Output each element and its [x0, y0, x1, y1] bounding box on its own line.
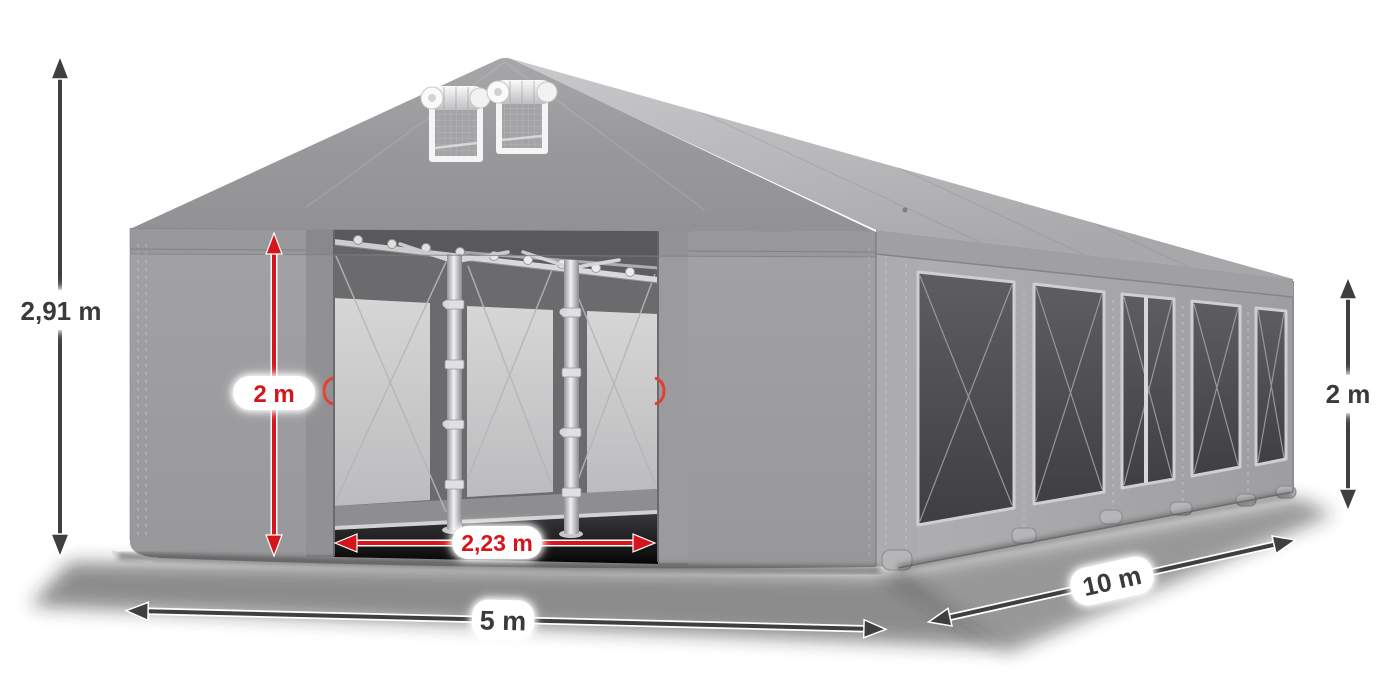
vent-window-right [487, 80, 557, 154]
vent-roll-left [421, 86, 490, 110]
tent [112, 57, 1296, 570]
side-window-5 [1256, 308, 1286, 465]
side-window-4 [1192, 301, 1240, 476]
interior-far-window-2 [467, 306, 553, 497]
side-window-1 [918, 272, 1014, 525]
arrowhead-down-icon [1339, 489, 1357, 511]
door-opening-interior [334, 230, 658, 564]
wall-height-label: 2 m [1326, 379, 1371, 409]
arrowhead-down-icon [51, 534, 69, 557]
wall-height-arrow: 2 m [1310, 277, 1386, 511]
door-height-label: 2 m [253, 381, 294, 408]
diagram-svg: 2,91 m 2 m 2,23 m 5 m [0, 0, 1400, 700]
total-height-arrow: 2,91 m [8, 56, 114, 557]
door-width-label: 2,23 m [461, 530, 533, 556]
front-valance [130, 228, 876, 257]
side-corner-column [876, 232, 918, 568]
vent-window-left [421, 86, 490, 162]
arrowhead-up-icon [51, 56, 69, 79]
side-window-3 [1122, 294, 1174, 488]
vent-roll-right [487, 80, 557, 104]
tent-dimension-diagram: 2,91 m 2 m 2,23 m 5 m [0, 0, 1400, 700]
arrowhead-up-icon [1339, 277, 1357, 299]
total-height-label: 2,91 m [21, 296, 102, 326]
front-width-label: 5 m [479, 605, 526, 636]
side-window-2 [1034, 284, 1104, 504]
